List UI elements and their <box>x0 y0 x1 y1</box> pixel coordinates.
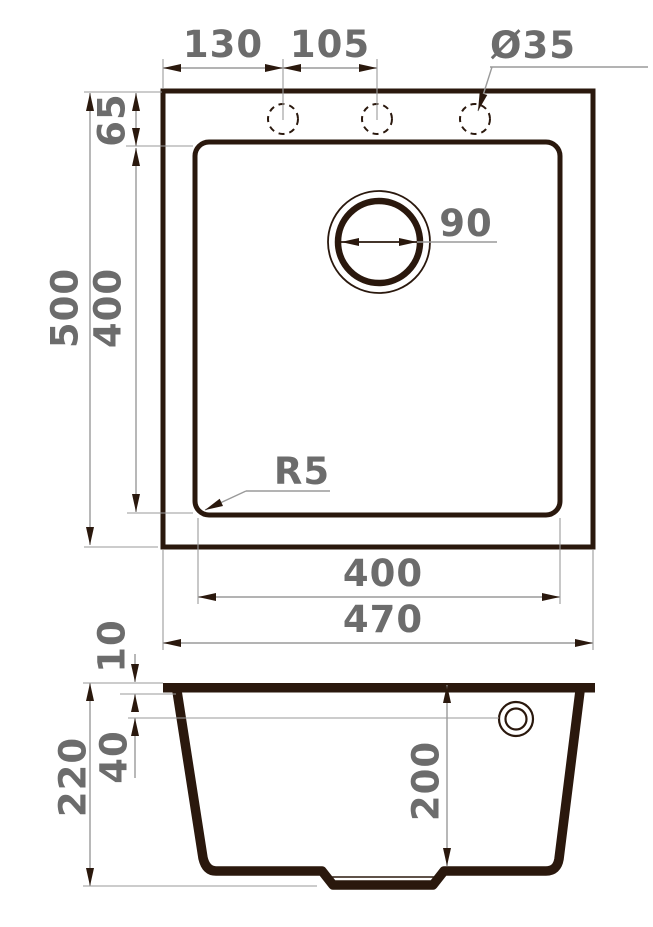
section-view: 10 40 220 200 <box>52 619 596 886</box>
dim-label-rim-to-bowl: 65 <box>91 93 134 147</box>
dim-label-overall-height: 220 <box>52 737 95 817</box>
dim-label-faucet-spacing: 105 <box>290 23 370 66</box>
sink-technical-drawing: 130 105 Ø35 65 500 400 90 R5 400 470 <box>0 0 653 927</box>
leader-arrow-corner-radius <box>205 491 246 510</box>
dim-label-overall-width: 470 <box>343 598 423 641</box>
dim-label-overflow-depth: 40 <box>93 730 136 784</box>
dim-label-drain-diameter: 90 <box>439 202 493 245</box>
dim-label-faucet-hole-diameter: Ø35 <box>490 24 576 67</box>
rim-flange <box>163 683 595 693</box>
dim-label-bowl-length: 400 <box>87 268 130 348</box>
dim-label-bowl-width: 400 <box>343 552 423 595</box>
dim-label-overall-length: 500 <box>44 268 87 348</box>
dim-label-corner-radius: R5 <box>274 450 330 493</box>
dim-label-faucet-offset: 130 <box>183 23 263 66</box>
bowl-section-outline <box>177 691 580 885</box>
overflow-hole-outer <box>499 702 533 736</box>
sink-outer-rim-outline <box>163 91 593 547</box>
dim-label-bowl-depth: 200 <box>405 741 448 821</box>
overflow-hole-inner <box>506 709 527 730</box>
top-view: 130 105 Ø35 65 500 400 90 R5 400 470 <box>44 23 649 650</box>
faucet-hole-3 <box>460 104 490 134</box>
dim-label-rim-thickness: 10 <box>91 619 134 673</box>
